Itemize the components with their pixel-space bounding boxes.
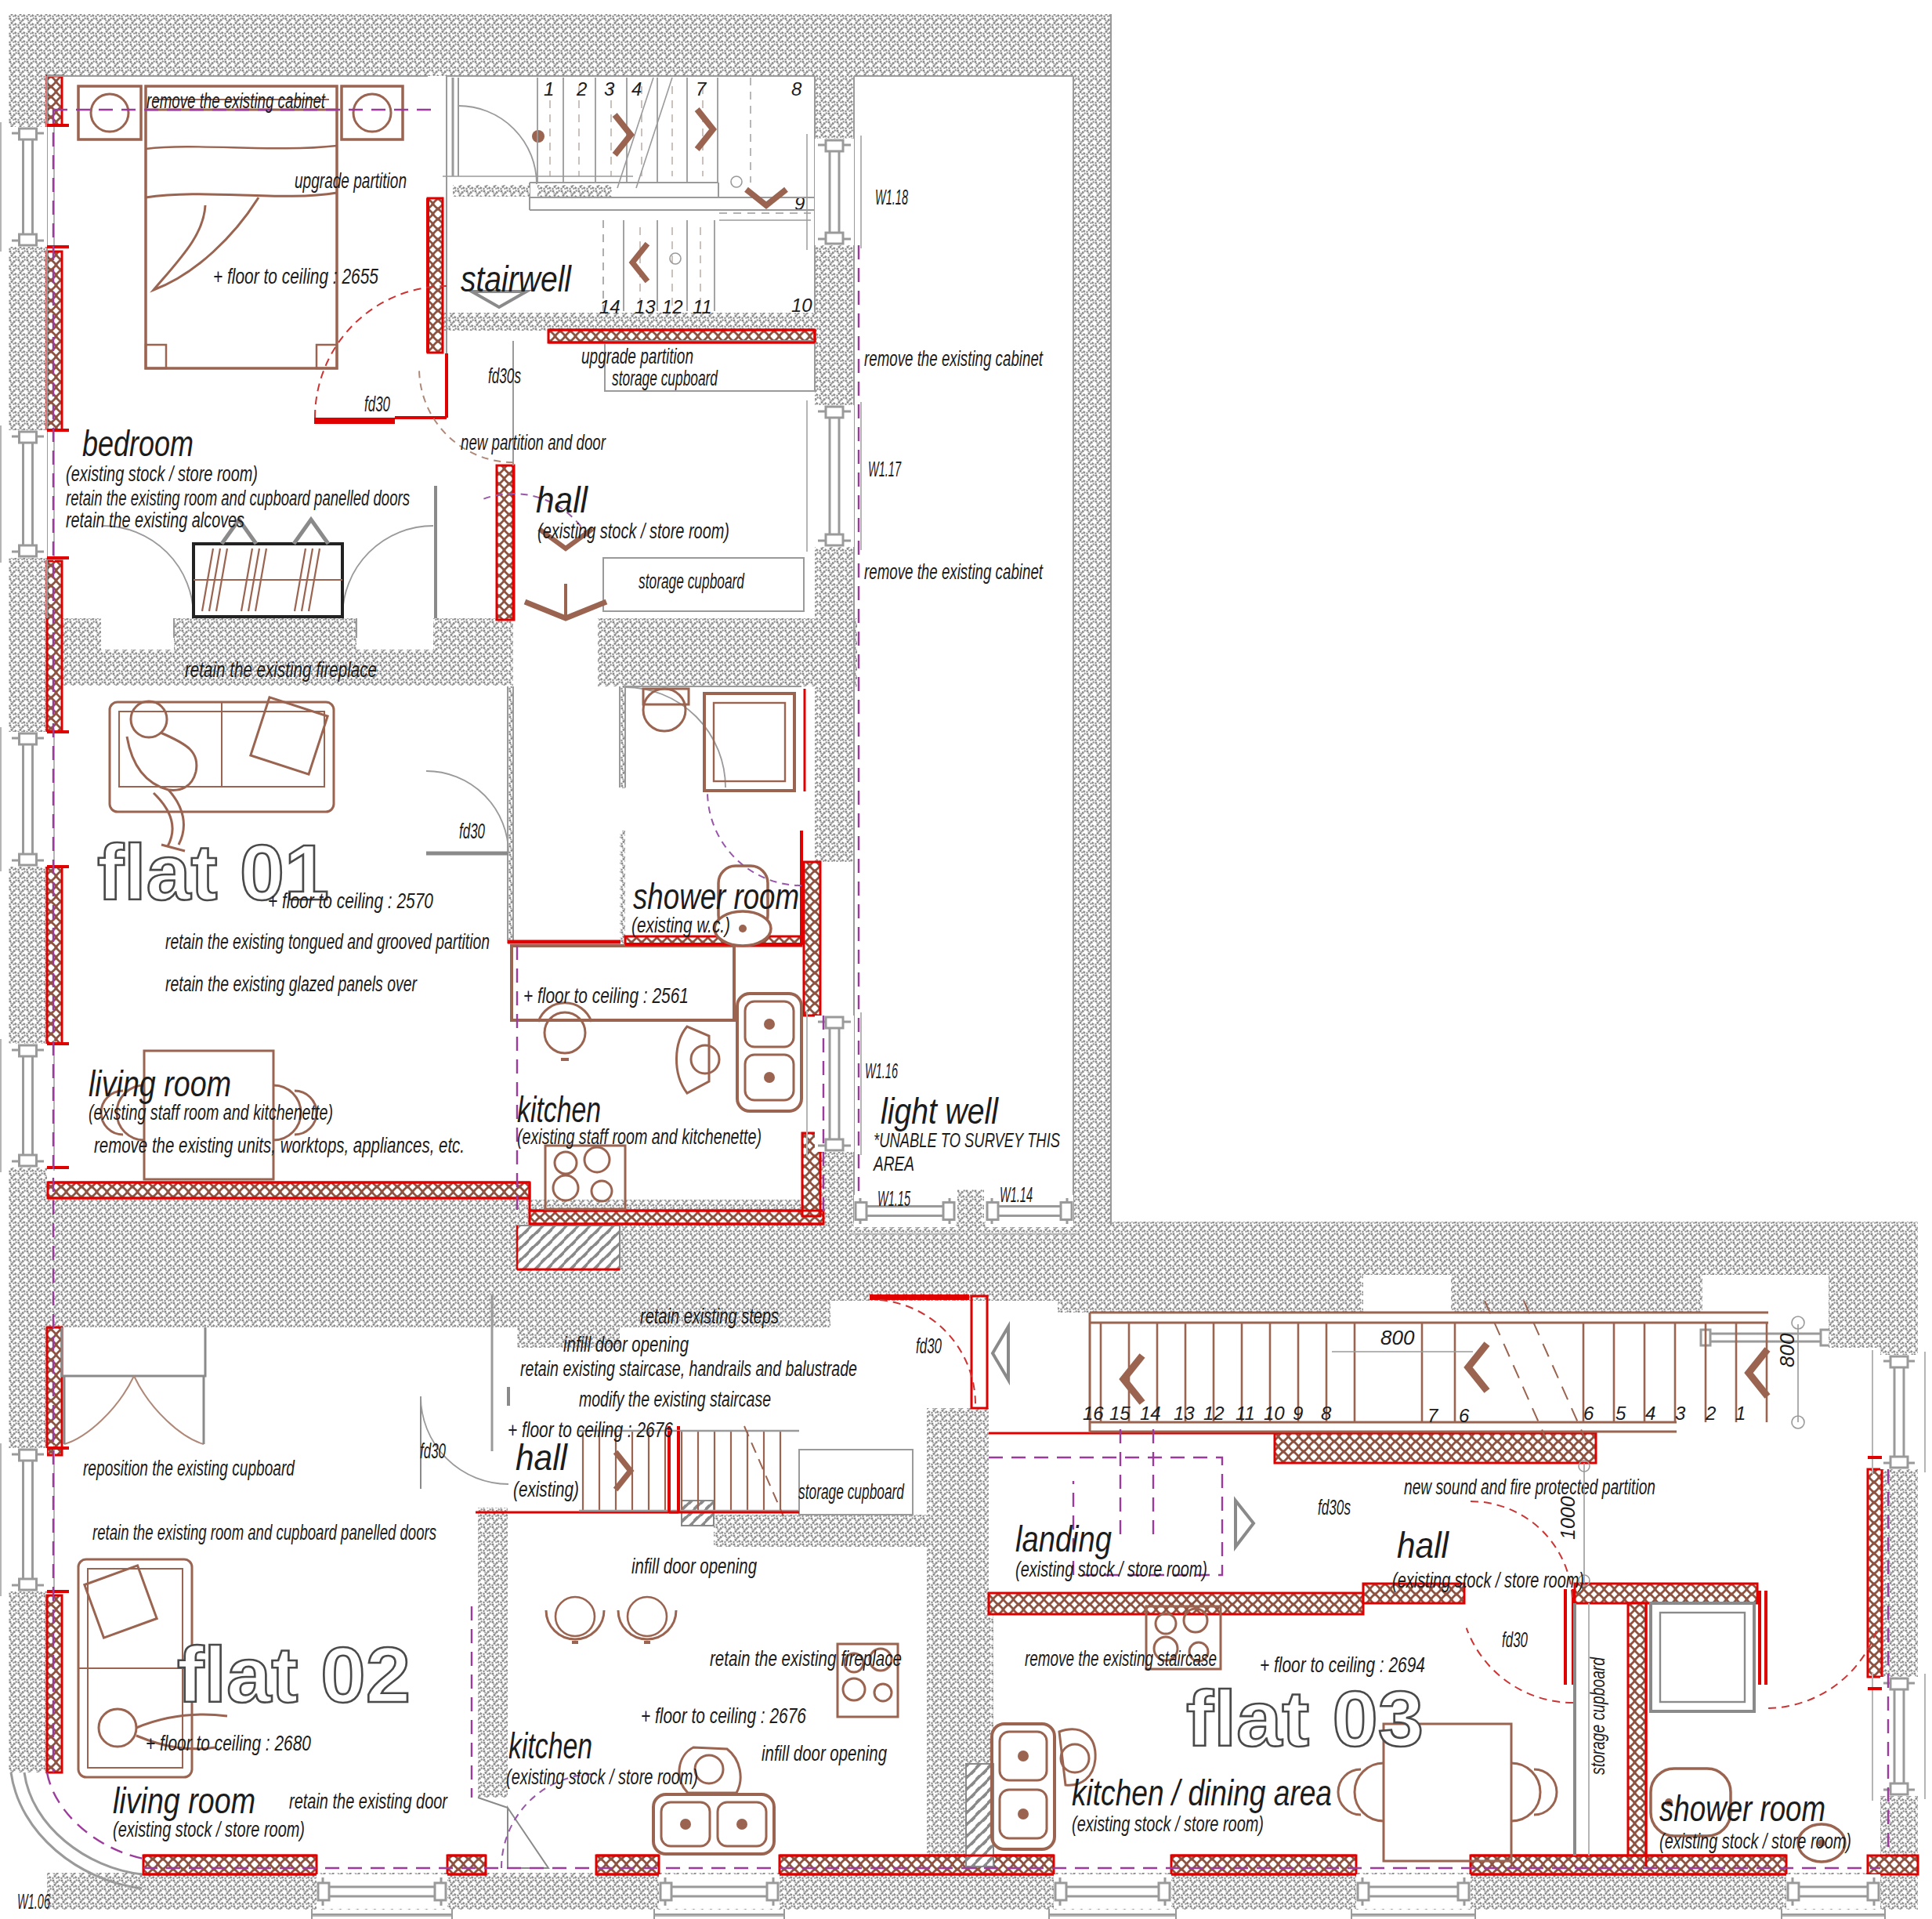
svg-text:2: 2: [1705, 1403, 1716, 1424]
svg-text:4: 4: [1645, 1403, 1655, 1424]
svg-text:storage cupboard: storage cupboard: [612, 367, 718, 390]
svg-text:(existing stock / store room): (existing stock / store room): [66, 462, 258, 486]
svg-text:800: 800: [1775, 1333, 1799, 1367]
svg-text:infill door opening: infill door opening: [762, 1742, 887, 1765]
svg-text:retain the existing tongued an: retain the existing tongued and grooved …: [165, 930, 490, 954]
svg-text:fd30: fd30: [459, 820, 485, 843]
svg-text:+ floor to ceiling : 2680: + floor to ceiling : 2680: [146, 1732, 311, 1755]
svg-text:storage cupboard: storage cupboard: [798, 1480, 905, 1504]
svg-text:8: 8: [791, 78, 802, 100]
svg-text:13: 13: [1174, 1403, 1195, 1424]
svg-text:11: 11: [693, 296, 712, 317]
svg-text:(existing stock / store room): (existing stock / store room): [1659, 1830, 1851, 1853]
svg-text:(existing staff room and kitch: (existing staff room and kitchenette): [517, 1125, 762, 1149]
svg-text:reposition the existing cupboa: reposition the existing cupboard: [83, 1457, 295, 1480]
svg-text:kitchen / dining area: kitchen / dining area: [1072, 1772, 1332, 1813]
svg-text:living room: living room: [89, 1063, 231, 1104]
svg-text:kitchen: kitchen: [508, 1725, 592, 1766]
svg-text:retain the existing fireplace: retain the existing fireplace: [185, 658, 377, 682]
svg-text:(existing stock / store room): (existing stock / store room): [537, 520, 729, 543]
svg-text:(existing staff room and kitch: (existing staff room and kitchenette): [89, 1101, 333, 1124]
svg-text:1000: 1000: [1557, 1496, 1579, 1540]
svg-text:3: 3: [604, 78, 615, 100]
svg-text:retain the existing door: retain the existing door: [289, 1790, 448, 1813]
svg-text:fd30: fd30: [1502, 1628, 1528, 1652]
svg-text:flat 02: flat 02: [177, 1631, 411, 1718]
svg-text:800: 800: [1380, 1326, 1415, 1349]
svg-text:new sound and fire protected p: new sound and fire protected partition: [1404, 1475, 1655, 1499]
svg-text:*UNABLE TO SURVEY THIS: *UNABLE TO SURVEY THIS: [874, 1128, 1060, 1152]
svg-text:retain the existing alcoves: retain the existing alcoves: [66, 509, 244, 532]
svg-text:landing: landing: [1015, 1519, 1112, 1559]
svg-text:remove the existing cabinet: remove the existing cabinet: [864, 347, 1044, 371]
svg-text:fd30: fd30: [420, 1439, 446, 1463]
svg-text:retain the existing glazed pan: retain the existing glazed panels over: [165, 972, 418, 996]
svg-text:fd30s: fd30s: [488, 364, 521, 388]
svg-text:shower room: shower room: [633, 876, 799, 917]
svg-text:upgrade partition: upgrade partition: [295, 169, 407, 193]
svg-text:4: 4: [631, 78, 642, 100]
svg-text:hall: hall: [516, 1437, 569, 1478]
svg-text:+ floor to ceiling : 2694: + floor to ceiling : 2694: [1260, 1653, 1425, 1677]
svg-text:W1.14: W1.14: [1000, 1183, 1033, 1207]
svg-text:9: 9: [1293, 1403, 1303, 1424]
svg-text:(existing w.c.): (existing w.c.): [631, 914, 730, 937]
svg-text:1: 1: [544, 78, 554, 100]
svg-text:infill door opening: infill door opening: [563, 1333, 689, 1356]
svg-text:infill door opening: infill door opening: [631, 1555, 757, 1578]
svg-text:2: 2: [576, 78, 587, 100]
svg-text:6: 6: [1583, 1403, 1594, 1424]
svg-text:W1.16: W1.16: [865, 1059, 899, 1083]
svg-text:hall: hall: [1397, 1525, 1450, 1566]
svg-text:fd30s: fd30s: [1318, 1496, 1351, 1519]
svg-text:10: 10: [1264, 1403, 1285, 1424]
svg-text:(existing): (existing): [513, 1478, 579, 1501]
svg-text:flat 03: flat 03: [1186, 1675, 1424, 1762]
svg-text:12: 12: [662, 296, 683, 317]
svg-text:+ floor to ceiling : 2561: + floor to ceiling : 2561: [523, 984, 689, 1008]
svg-text:storage cupboard: storage cupboard: [639, 570, 745, 593]
svg-text:14: 14: [1140, 1403, 1161, 1424]
svg-text:retain existing steps: retain existing steps: [640, 1305, 779, 1328]
svg-text:(existing stock / store room): (existing stock / store room): [113, 1818, 305, 1841]
svg-text:stairwell: stairwell: [461, 259, 573, 299]
svg-text:AREA: AREA: [873, 1152, 914, 1175]
svg-text:+ floor to ceiling : 2655: + floor to ceiling : 2655: [213, 265, 379, 288]
svg-text:7: 7: [1427, 1405, 1439, 1426]
svg-text:+ floor to ceiling : 2570: + floor to ceiling : 2570: [268, 889, 433, 913]
svg-text:16: 16: [1083, 1403, 1104, 1424]
svg-text:remove the existing units, wo: remove the existing units, worktops, app…: [94, 1134, 465, 1157]
svg-text:W1.15: W1.15: [877, 1187, 911, 1211]
svg-text:1: 1: [1735, 1403, 1746, 1424]
svg-text:fd30: fd30: [364, 393, 390, 416]
svg-text:hall: hall: [536, 480, 589, 520]
svg-text:12: 12: [1203, 1403, 1225, 1424]
svg-text:living room: living room: [113, 1780, 255, 1821]
svg-text:11: 11: [1236, 1403, 1255, 1424]
svg-text:retain the existing room and c: retain the existing room and cupboard pa…: [66, 487, 410, 510]
svg-text:15: 15: [1109, 1403, 1131, 1424]
svg-text:13: 13: [635, 296, 656, 317]
svg-text:kitchen: kitchen: [517, 1089, 601, 1130]
svg-text:5: 5: [1615, 1403, 1626, 1424]
svg-text:remove the existing cabinet: remove the existing cabinet: [864, 560, 1044, 584]
svg-text:remove the existing staircase: remove the existing staircase: [1025, 1647, 1217, 1671]
svg-text:remove the existing cabinet: remove the existing cabinet: [147, 89, 326, 113]
svg-text:6: 6: [1459, 1405, 1470, 1426]
svg-text:W1.18: W1.18: [875, 186, 908, 209]
svg-text:retain the existing room and c: retain the existing room and cupboard pa…: [92, 1521, 436, 1544]
svg-text:3: 3: [1675, 1403, 1686, 1424]
svg-text:new partition and door: new partition and door: [461, 431, 606, 454]
svg-text:(existing stock / store room): (existing stock / store room): [506, 1765, 698, 1789]
svg-text:light well: light well: [881, 1091, 1000, 1131]
svg-text:W1.06: W1.06: [17, 1890, 51, 1914]
svg-text:shower room: shower room: [1659, 1788, 1825, 1829]
svg-text:retain the existing fireplace: retain the existing fireplace: [710, 1647, 902, 1671]
svg-text:W1.17: W1.17: [868, 458, 902, 481]
svg-text:+ floor to ceiling : 2676: + floor to ceiling : 2676: [641, 1704, 807, 1728]
svg-text:modify the existing staircase: modify the existing staircase: [579, 1388, 771, 1411]
svg-text:upgrade partition: upgrade partition: [581, 345, 693, 368]
svg-text:fd30: fd30: [916, 1334, 942, 1358]
svg-text:14: 14: [599, 296, 620, 317]
svg-text:7: 7: [696, 78, 707, 100]
svg-text:bedroom: bedroom: [82, 423, 194, 464]
svg-text:retain existing staircase, han: retain existing staircase, handrails and…: [520, 1357, 857, 1381]
svg-text:(existing stock / store room): (existing stock / store room): [1072, 1812, 1264, 1836]
svg-text:10: 10: [791, 295, 812, 316]
svg-text:(existing stock / store room): (existing stock / store room): [1015, 1558, 1207, 1581]
svg-text:8: 8: [1321, 1403, 1332, 1424]
svg-text:(existing stock / store room): (existing stock / store room): [1392, 1569, 1584, 1592]
